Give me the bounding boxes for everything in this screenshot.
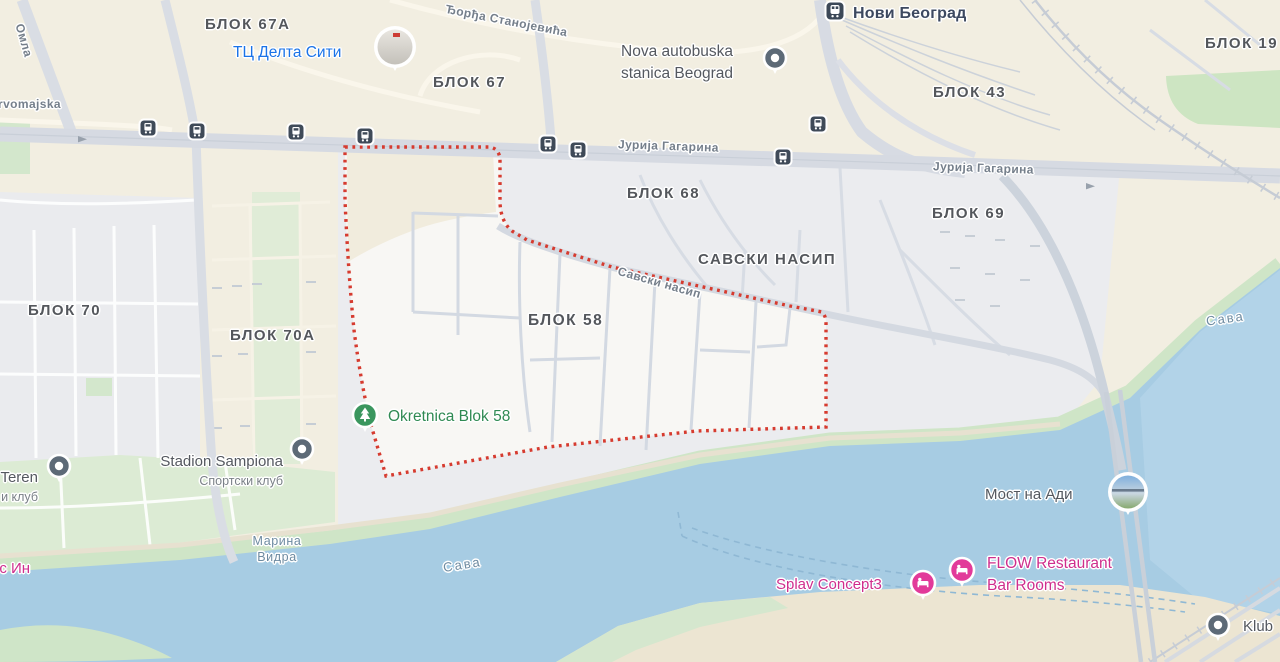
area-label-blok-70a[interactable]: БЛОК 70А bbox=[230, 327, 315, 346]
poi-label-teren[interactable]: Teren и клуб bbox=[0, 450, 38, 524]
poi-label-okretnica-blok-58[interactable]: Okretnica Blok 58 bbox=[388, 407, 510, 426]
poi-subtitle: и клуб bbox=[0, 490, 38, 506]
train-station-icon[interactable] bbox=[826, 2, 845, 21]
poi-title: Teren bbox=[0, 469, 38, 486]
area-label-blok-43[interactable]: БЛОК 43 bbox=[933, 84, 1006, 103]
area-label-blok-67a[interactable]: БЛОК 67А bbox=[205, 16, 290, 35]
poi-label-flow-restaurant[interactable]: FLOW Restaurant Bar Rooms bbox=[987, 553, 1112, 597]
area-label-blok-67[interactable]: БЛОК 67 bbox=[433, 74, 506, 93]
street-label-prvomajska: rvomajska bbox=[0, 97, 61, 112]
poi-label-klub[interactable]: Klub bbox=[1243, 618, 1273, 637]
water-label-marina-vidra: Марина Видра bbox=[232, 534, 322, 565]
map-canvas[interactable]: БЛОК 67А БЛОК 67 БЛОК 43 БЛОК 19 БЛОК 68… bbox=[0, 0, 1280, 662]
area-label-blok-19[interactable]: БЛОК 19 bbox=[1205, 35, 1278, 54]
poi-label-us-in[interactable]: ус Ин bbox=[0, 560, 30, 579]
poi-title: Stadion Sampiona bbox=[160, 453, 283, 470]
area-label-blok-58[interactable]: БЛОК 58 bbox=[528, 311, 603, 330]
poi-label-delta-city[interactable]: ТЦ Делта Сити bbox=[233, 43, 341, 62]
poi-label-novi-beograd-station[interactable]: Нови Београд bbox=[853, 4, 967, 24]
poi-label-most-na-adi[interactable]: Мост на Ади bbox=[985, 486, 1072, 505]
area-label-blok-68[interactable]: БЛОК 68 bbox=[627, 185, 700, 204]
poi-label-bus-station[interactable]: Nova autobuska stanica Beograd bbox=[621, 41, 733, 85]
area-label-blok-69[interactable]: БЛОК 69 bbox=[932, 205, 1005, 224]
poi-label-stadion-sampiona[interactable]: Stadion Sampiona Спортски клуб bbox=[133, 434, 283, 508]
poi-subtitle: Спортски клуб bbox=[133, 474, 283, 490]
area-label-savski-nasip[interactable]: САВСКИ НАСИП bbox=[698, 251, 836, 270]
area-label-blok-70[interactable]: БЛОК 70 bbox=[28, 302, 101, 321]
poi-label-splav-concept3[interactable]: Splav Concept3 bbox=[776, 576, 882, 595]
